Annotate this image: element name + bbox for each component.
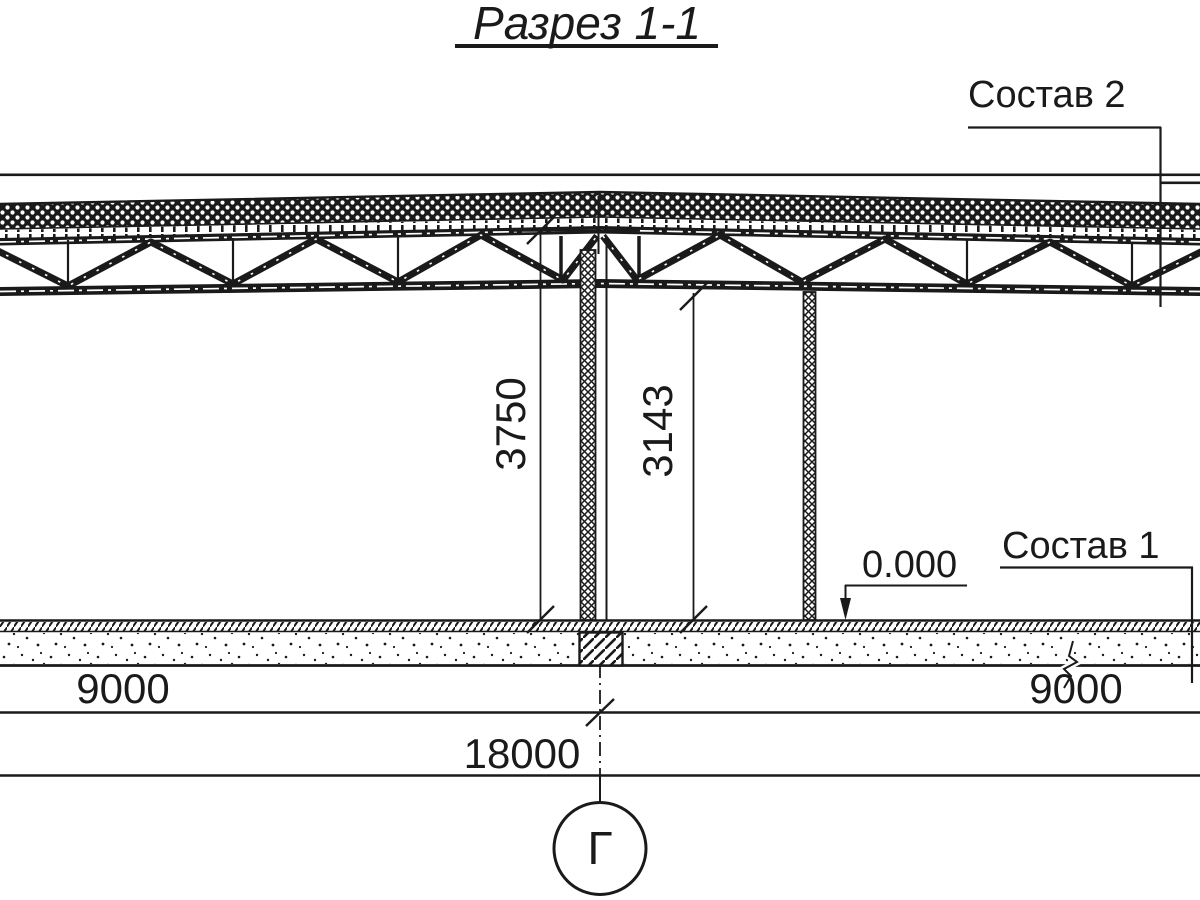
truss-bottom-chord — [0, 279, 1200, 296]
foundation-block — [580, 633, 623, 666]
grid-axis: Г — [554, 664, 646, 895]
right-column — [804, 292, 816, 620]
dimension-9000-right-text: 9000 — [1029, 665, 1122, 712]
elevation-marker: 0.000 — [840, 544, 967, 620]
section-title-text: Разрез 1-1 — [473, 0, 701, 49]
center-column — [581, 240, 607, 620]
grid-axis-letter: Г — [588, 822, 613, 874]
composition-2-text: Состав 2 — [968, 74, 1126, 116]
composition-1-text: Состав 1 — [1002, 525, 1160, 567]
dimension-18000-text: 18000 — [464, 730, 581, 777]
elevation-arrow-icon — [840, 598, 851, 620]
roof-top-lines — [0, 174, 1200, 185]
dimension-3750-text: 3750 — [487, 377, 534, 470]
section-title: Разрез 1-1 — [455, 0, 718, 49]
floor-topping-hatch — [0, 622, 1200, 631]
section-title-underline — [455, 44, 718, 48]
dimension-9000-left-text: 9000 — [76, 665, 169, 712]
dimension-3143-text: 3143 — [634, 384, 681, 477]
dimension-3750: 3750 — [487, 217, 554, 633]
elevation-text: 0.000 — [862, 544, 957, 586]
section-drawing-sheet: Разрез 1-1 — [0, 0, 1200, 900]
dimension-3143: 3143 — [634, 283, 707, 633]
